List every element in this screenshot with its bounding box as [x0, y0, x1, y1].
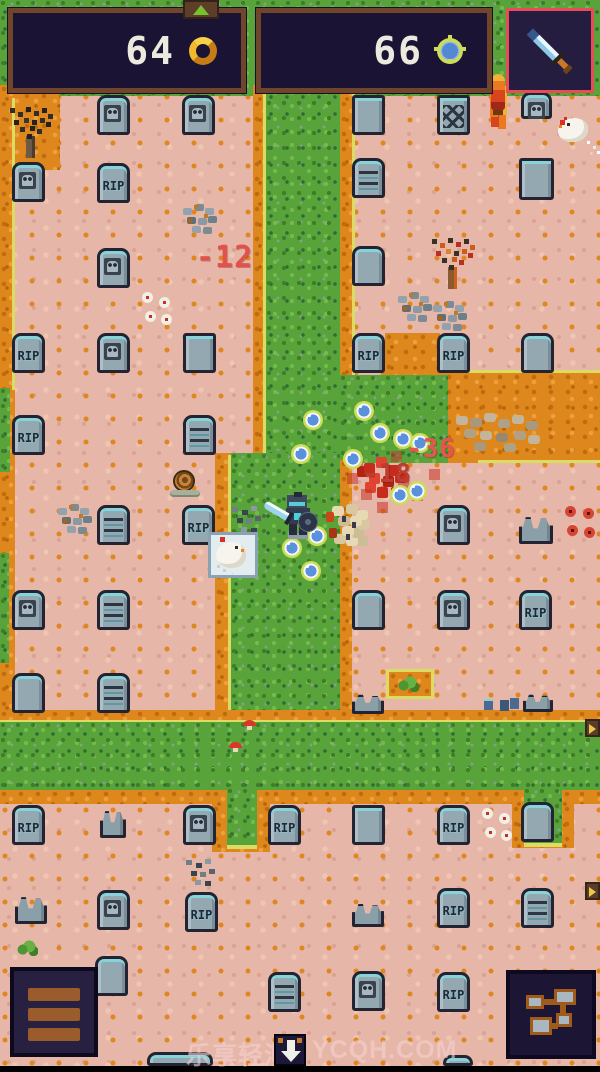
tomb-rip: RIP: [437, 888, 470, 928]
tomb-skull: [182, 95, 215, 135]
grass-finger: [524, 788, 562, 843]
tomb-broken: [519, 516, 553, 544]
hamburger-icon: [28, 1028, 80, 1041]
tomb-lines: [97, 590, 130, 630]
tomb-rip: RIP: [12, 333, 45, 373]
tomb-square: [352, 805, 385, 845]
tomb-lines: [352, 158, 385, 198]
tomb-skull: [12, 590, 45, 630]
tomb-rip: RIP: [437, 805, 470, 845]
dungeon-map-icon: [524, 987, 578, 1041]
tomb-skull: [437, 505, 470, 545]
tomb-broken: [352, 903, 384, 927]
tomb-blank: [443, 1055, 473, 1066]
grass-path-vertical: [266, 85, 340, 463]
tomb-rip: RIP: [185, 892, 218, 932]
dirt-band-right: [428, 373, 600, 463]
grass-band-horizontal: [0, 722, 600, 790]
tomb-skull: [97, 248, 130, 288]
tomb-broken: [15, 896, 47, 924]
gem-counter-panel: 66: [256, 8, 492, 93]
blue-gem-coin-icon: [437, 38, 463, 64]
weapon-slot-button[interactable]: [506, 8, 594, 93]
bush: [16, 940, 38, 956]
tomb-square: [352, 95, 385, 135]
tomb-broken: [100, 810, 126, 838]
pinwheels: [480, 806, 516, 846]
redflowers: [563, 504, 600, 542]
tomb-rip: RIP: [352, 333, 385, 373]
tomb-rip: RIP: [519, 590, 552, 630]
gem-count: 66: [373, 29, 423, 73]
dirt-border: [340, 460, 352, 715]
rocks: [55, 503, 95, 543]
redtile: [398, 477, 409, 488]
down-arrow-indicator[interactable]: [274, 1034, 306, 1066]
arrow-right: [585, 882, 600, 900]
debris: [182, 856, 220, 896]
rocks: [395, 291, 435, 331]
up-arrow-indicator[interactable]: [183, 0, 219, 19]
gold-counter-panel: 64: [8, 8, 246, 93]
tomb-lines: [521, 888, 554, 928]
tomb-lines: [268, 972, 301, 1012]
snail: [170, 470, 202, 498]
edge-line: [524, 843, 562, 847]
tomb-skull: [352, 971, 385, 1011]
tomb-skull: [97, 95, 130, 135]
menu-button[interactable]: [10, 967, 98, 1057]
tomb-rip: RIP: [12, 805, 45, 845]
tomb-lines: [97, 505, 130, 545]
tomb-blank: [95, 956, 128, 996]
redtile: [377, 502, 388, 513]
tomb-rip: RIP: [12, 415, 45, 455]
hamburger-icon: [28, 988, 80, 1001]
tomb-lines: [97, 673, 130, 713]
tomb-blank: [521, 333, 554, 373]
tomb-rip: RIP: [182, 505, 215, 545]
gold-ring-coin-icon: [189, 37, 217, 65]
grass-player-area: [231, 453, 340, 733]
tomb-lines: [183, 415, 216, 455]
tomb-rip: RIP: [437, 333, 470, 373]
tomb-skull: [97, 890, 130, 930]
tomb-skull: [97, 333, 130, 373]
pinwheels: [140, 290, 176, 330]
sword-icon: [525, 25, 576, 76]
grass-widening: [340, 375, 448, 463]
redtile: [361, 489, 372, 500]
tomb-rip: RIP: [97, 163, 130, 203]
map-button[interactable]: [506, 970, 596, 1059]
redtile: [429, 469, 440, 480]
edge-line: [12, 98, 15, 390]
dirt-opening: [386, 669, 434, 699]
damage-number: -12: [196, 240, 253, 275]
tomb-skull: [521, 92, 552, 119]
dirt-strip: [0, 790, 600, 804]
tree-autumn: [430, 237, 478, 295]
gold-count: 64: [125, 29, 175, 73]
grass-finger: [227, 788, 257, 845]
tomb-skull: [437, 590, 470, 630]
damage-number: -18: [362, 459, 412, 489]
edge-line: [478, 460, 600, 463]
grass-left-patch: [0, 553, 9, 663]
grass-left-patch: [0, 388, 10, 472]
tomb-rip: RIP: [268, 805, 301, 845]
tomb-blank: [12, 673, 45, 713]
game-viewport[interactable]: RIPRIPRIPRIPRIPRIPRIPRIPRIPRIPRIPRIPRIP-…: [0, 0, 600, 1066]
tomb-blank: [352, 590, 385, 630]
hamburger-icon: [28, 1008, 80, 1021]
edge-line: [227, 845, 257, 849]
gem: [407, 481, 427, 501]
tomb-rip: RIP: [437, 972, 470, 1012]
rocks: [430, 300, 474, 332]
chicken: [556, 112, 598, 154]
tomb-square: [183, 333, 216, 373]
tomb-bricks: [437, 95, 470, 135]
redtile: [412, 490, 423, 501]
tomb-blank: [352, 246, 385, 286]
tomb-blank: [147, 1052, 213, 1066]
tomb-square: [519, 158, 554, 200]
edge-line: [352, 85, 355, 378]
dirt-border: [340, 85, 352, 385]
rocks: [180, 203, 220, 243]
gem: [390, 485, 410, 505]
